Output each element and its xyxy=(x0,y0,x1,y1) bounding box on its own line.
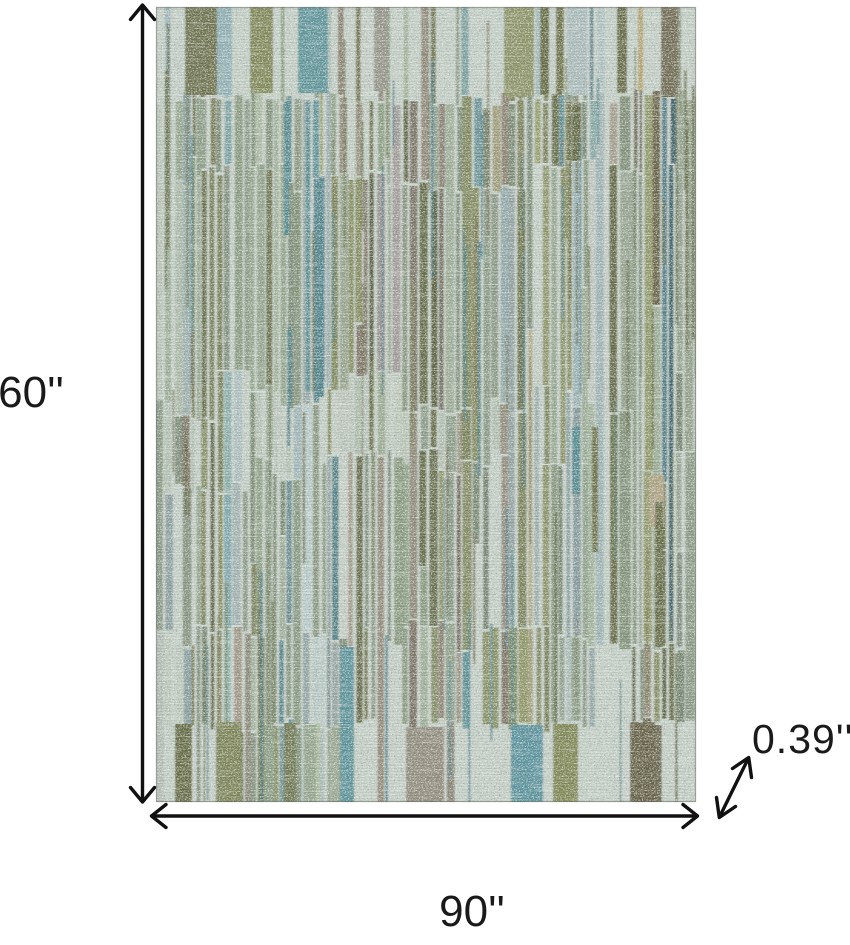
svg-text:60'': 60'' xyxy=(0,368,64,417)
svg-text:90'': 90'' xyxy=(439,887,505,936)
svg-text:0.39'': 0.39'' xyxy=(752,716,850,762)
